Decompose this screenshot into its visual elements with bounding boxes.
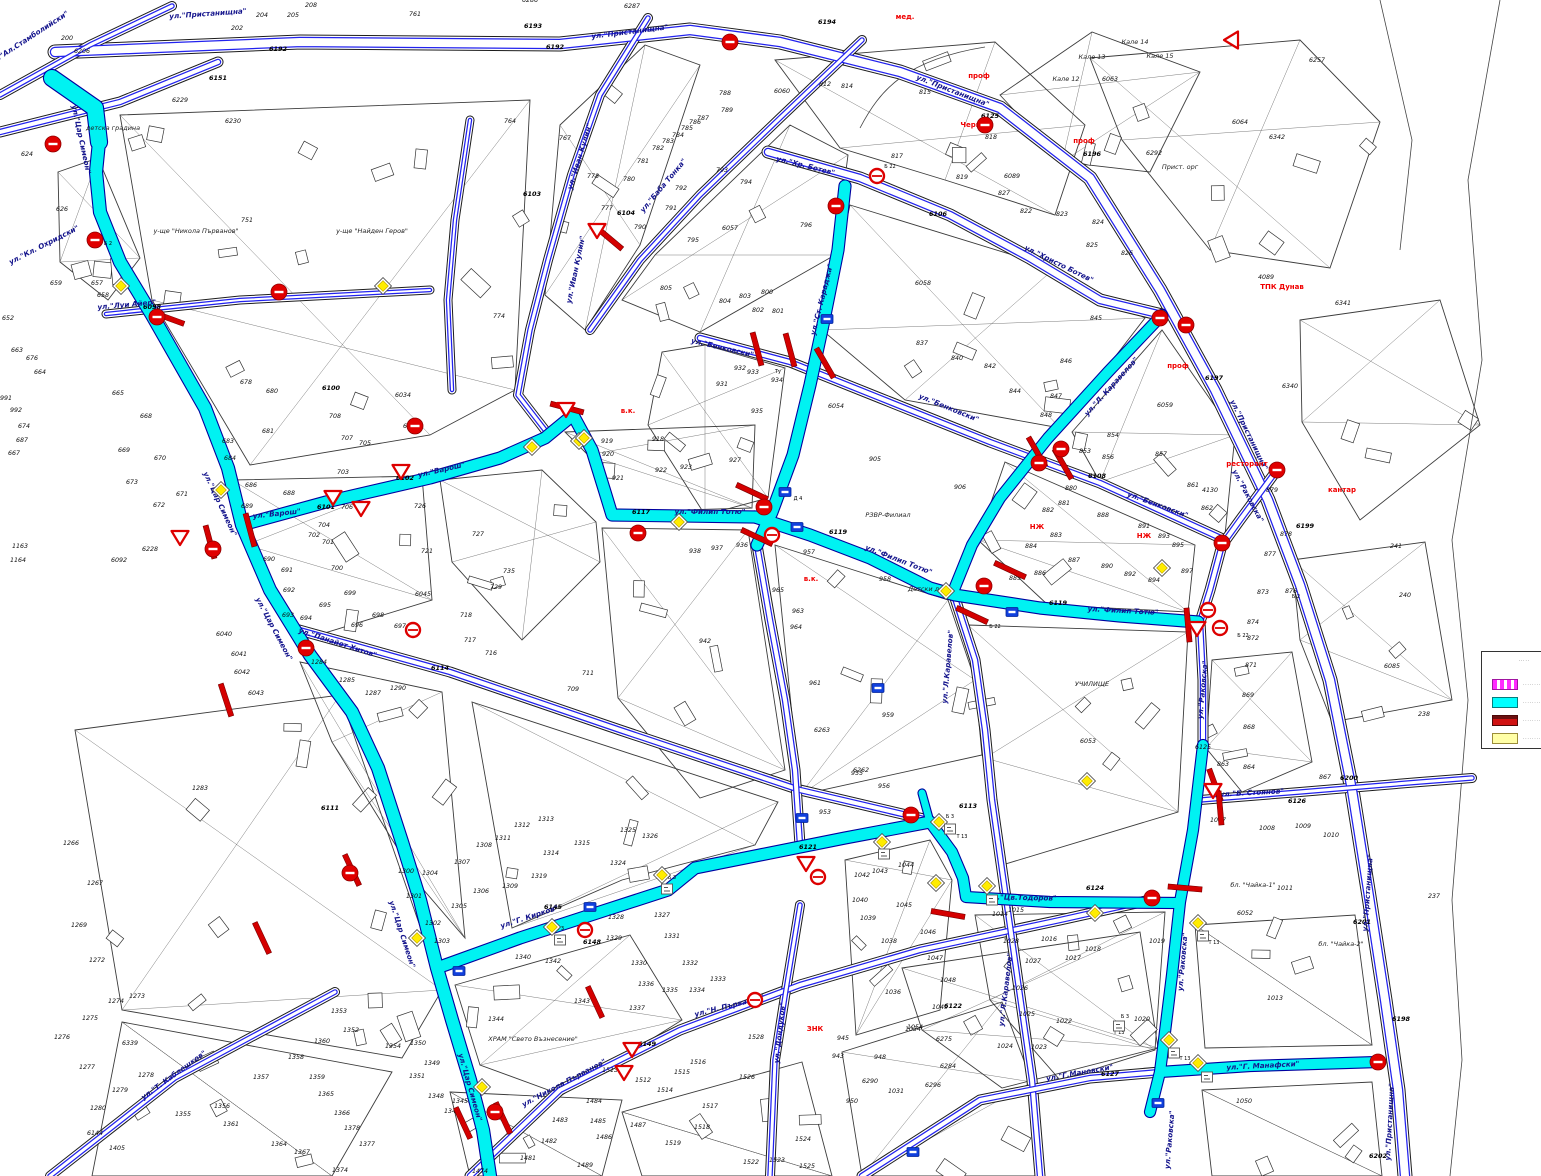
no-entry-sign-icon <box>630 525 646 541</box>
info-sign-icon <box>1006 608 1018 617</box>
parcel-number: 791 <box>665 205 677 212</box>
no-entry-sign-icon <box>205 541 221 557</box>
parcel-number: 1326 <box>642 833 658 840</box>
place-label: бл. "Чайка-1" <box>1230 881 1275 889</box>
parcel-number: 956 <box>878 783 890 790</box>
parcel-number: 1519 <box>665 1140 681 1147</box>
legend: ····· ·········· ········· ········· ···… <box>1481 651 1541 749</box>
street-name-label: ул."Л.Каравелов" <box>940 629 955 704</box>
parcel-number: 1045 <box>896 902 912 909</box>
parcel-number: 6229 <box>172 97 188 104</box>
parcel-number: 1514 <box>657 1087 673 1094</box>
parcel-number: 6206 <box>74 48 90 55</box>
parcel-number: 1360 <box>314 1038 330 1045</box>
no-stopping-sign-icon <box>1201 603 1215 617</box>
building-footprint <box>1252 950 1270 959</box>
building-footprint <box>461 268 491 297</box>
parcel-number: 6054 <box>828 403 844 410</box>
parcel-number: 1344 <box>488 1016 504 1023</box>
parcel-number: 1524 <box>795 1136 811 1143</box>
building-footprint <box>749 205 766 222</box>
building-footprint <box>298 141 317 160</box>
priority-road-sign-icon <box>1190 915 1207 932</box>
parcel-number: 1319 <box>531 873 547 880</box>
parcel-number: 698 <box>372 612 384 619</box>
parcel-number: 1331 <box>664 933 680 940</box>
parcel-number: 1359 <box>309 1074 325 1081</box>
parcel-number: 6041 <box>231 651 247 658</box>
no-entry-sign-icon <box>487 1104 503 1120</box>
street-code: 6113 <box>959 802 978 810</box>
building-footprint <box>93 261 112 278</box>
parcel-number: 676 <box>26 355 38 362</box>
building-footprint <box>295 250 308 265</box>
parcel-number: 919 <box>601 438 613 445</box>
parcel-number: 1356 <box>214 1103 230 1110</box>
building-footprint <box>1130 1019 1157 1046</box>
building-footprint <box>841 667 864 682</box>
parcel-number: 965 <box>772 587 784 594</box>
building-footprint <box>1208 236 1231 263</box>
parcel-number: 735 <box>503 568 515 575</box>
parcel-number: 1486 <box>596 1134 612 1141</box>
place-label: УЧИЛИЩЕ <box>1075 680 1110 688</box>
parcel-number: 961 <box>809 680 821 687</box>
building-footprint <box>1103 752 1120 770</box>
parcel-number: 1275 <box>82 1015 98 1022</box>
street-name-label: ул."Иван Кулин" <box>564 235 587 304</box>
parcel-number: 794 <box>740 179 752 186</box>
street-code: 6199 <box>1296 522 1315 530</box>
sign-code-label: Б 22 <box>989 624 1000 630</box>
building-footprint <box>400 534 411 546</box>
building-footprint <box>1001 1126 1031 1152</box>
parcel-subdivision <box>250 100 530 465</box>
building-footprint <box>371 910 387 931</box>
parcel-number: 708 <box>329 413 341 420</box>
parcel-number: 751 <box>241 217 253 224</box>
building-footprint <box>710 645 723 672</box>
parcel-number: 1267 <box>87 880 103 887</box>
parcel-number: 801 <box>772 308 784 315</box>
sign-plate-icon <box>662 884 673 894</box>
parcel-number: 936 <box>736 542 748 549</box>
street-code: 6111 <box>321 804 339 812</box>
street-name-label: ул."Раковска" <box>1162 1110 1176 1169</box>
place-label: у-ще "Найден Геров" <box>335 227 408 235</box>
parcel-number: 6287 <box>624 3 640 10</box>
building-footprint <box>1291 956 1313 974</box>
road-surface <box>518 18 648 430</box>
sign-code-label: Б 2 <box>104 241 112 247</box>
parcel-number: 673 <box>126 479 138 486</box>
parcel-number: 687 <box>16 437 28 444</box>
parcel-number: 1039 <box>860 915 876 922</box>
parcel-number: 6339 <box>122 1040 138 1047</box>
parcel-number: 847 <box>1050 393 1062 400</box>
parcel-number: 1050 <box>1236 1098 1252 1105</box>
parcel-number: 1034 <box>905 1026 921 1033</box>
parcel-number: 1010 <box>1323 832 1339 839</box>
parcel-number: 868 <box>1243 724 1255 731</box>
parcel-number: 1278 <box>138 1072 154 1079</box>
parcel-number: 1351 <box>409 1073 425 1080</box>
legend-swatch-yellow <box>1492 733 1518 744</box>
legend-swatch-cyan <box>1492 697 1518 708</box>
parcel-number: 882 <box>1042 507 1054 514</box>
parcel-number: 1377 <box>359 1141 375 1148</box>
parcel-number: 853 <box>1079 448 1091 455</box>
parcel-number: 1042 <box>854 872 870 879</box>
parcel-number: 922 <box>655 467 667 474</box>
parcel-number: 805 <box>660 285 672 292</box>
parcel-number: 658 <box>97 292 109 299</box>
street-name-label: ул."Иван Кулин" <box>565 122 594 191</box>
parcel-number: 1048 <box>940 977 956 984</box>
parcel-number: 906 <box>954 484 966 491</box>
parcel-number: 1528 <box>748 1034 764 1041</box>
legend-swatch-red <box>1492 715 1518 726</box>
parcel-number: 697 <box>394 623 406 630</box>
priority-road-sign-icon <box>1154 560 1171 577</box>
place-label: Кале 13 <box>1078 53 1105 61</box>
street-code: 6106 <box>929 210 948 218</box>
parcel-subdivision <box>1122 122 1380 140</box>
no-entry-sign-icon <box>298 640 314 656</box>
parcel-number: 1022 <box>1056 1018 1072 1025</box>
parcel-number: 700 <box>331 565 343 572</box>
street-code: 6126 <box>1288 797 1307 805</box>
legend-item-regulation: ·········· <box>1492 674 1541 686</box>
parcel-number: 1335 <box>662 987 678 994</box>
parcel-number: 704 <box>318 522 330 529</box>
parcel-number: 6060 <box>774 88 790 95</box>
annotation-red-label: мед. <box>896 13 915 21</box>
parcel-number: 777 <box>601 205 613 212</box>
sign-code-label: Б 2 <box>1292 594 1300 600</box>
parcel-number: 1014 <box>992 911 1008 918</box>
parcel-number: 854 <box>1107 432 1119 439</box>
street-name-label: ул."Дондуков" <box>772 1002 787 1064</box>
parcel-number: 781 <box>637 158 649 165</box>
parcel-number: 1315 <box>574 840 590 847</box>
legend-swatch-magenta <box>1492 679 1518 690</box>
parcel-number: 887 <box>1068 557 1080 564</box>
parcel-number: 707 <box>341 435 353 442</box>
parcel-number: 1031 <box>888 1088 904 1095</box>
info-sign-icon <box>584 903 596 912</box>
parcel-number: 204 <box>256 12 268 19</box>
field-boundary <box>1450 0 1500 1176</box>
parcel-number: 6286 <box>522 0 538 4</box>
parcel-number: 1324 <box>610 860 626 867</box>
parcel-number: 857 <box>1155 451 1167 458</box>
parcel-number: 1311 <box>495 835 511 842</box>
parcel-number: 1276 <box>54 1034 70 1041</box>
parcel-number: 892 <box>1124 571 1136 578</box>
parcel-number: 1300 <box>398 868 414 875</box>
parcel-subdivision <box>1072 432 1235 435</box>
parcel-subdivision <box>1212 660 1312 762</box>
no-entry-sign-icon <box>977 117 993 133</box>
parcel-number: 788 <box>719 90 731 97</box>
street-code: 6119 <box>829 528 848 536</box>
parcel-number: 1266 <box>63 840 79 847</box>
parcel-number: 1367 <box>294 1149 310 1156</box>
parcel-number: 6043 <box>248 690 264 697</box>
building-footprint <box>432 779 456 805</box>
no-entry-sign-icon <box>1152 310 1168 326</box>
parcel-number: 1522 <box>743 1159 759 1166</box>
parcel-number: 729 <box>490 584 502 591</box>
parcel-number: 787 <box>697 115 709 122</box>
place-label: ХРАМ "Свето Възнесение" <box>487 1035 577 1043</box>
building-footprint <box>639 603 667 618</box>
parcel-number: 663 <box>11 347 23 354</box>
parcel-number: 884 <box>1025 543 1037 550</box>
parcel-number: 827 <box>998 190 1010 197</box>
surveyed-street <box>437 822 930 968</box>
parcel-subdivision <box>522 470 542 640</box>
place-label: РЗВР-Филиал <box>865 511 910 519</box>
building-footprint <box>1044 380 1059 392</box>
parcel-number: 6045 <box>415 591 431 598</box>
parcel-number: 626 <box>56 206 68 213</box>
parcel-number: 938 <box>689 548 701 555</box>
legend-item-priority: ·········· <box>1492 728 1541 740</box>
street-code: 6104 <box>617 209 636 217</box>
priority-road-sign-icon <box>928 875 945 892</box>
parcel-number: 959 <box>882 712 894 719</box>
parcel-number: 6092 <box>111 557 127 564</box>
parcel-number: 1361 <box>223 1121 239 1128</box>
no-stopping-sign-icon <box>870 169 884 183</box>
parcel-number: 1272 <box>89 957 105 964</box>
parcel-number: 937 <box>711 545 723 552</box>
parcel-block <box>648 345 785 515</box>
parcel-subdivision <box>120 115 430 435</box>
parcel-number: 664 <box>34 369 46 376</box>
parcel-number: 931 <box>716 381 728 388</box>
building-footprint <box>128 135 145 152</box>
parcel-number: 1517 <box>702 1103 718 1110</box>
parcel-number: 824 <box>1092 219 1104 226</box>
building-footprint <box>368 993 382 1008</box>
building-footprint <box>964 1015 983 1035</box>
parcel-number: 689 <box>241 503 253 510</box>
parcel-number: 1008 <box>1259 825 1275 832</box>
parcel-subdivision <box>152 300 515 390</box>
parcel-number: 1354 <box>385 1043 401 1050</box>
parcel-number: 1308 <box>476 842 492 849</box>
road-surface-inner <box>518 18 648 430</box>
parcel-number: 825 <box>1086 242 1098 249</box>
building-footprint <box>1118 975 1133 991</box>
street-code: 6119 <box>1049 599 1068 607</box>
parcel-number: 1483 <box>552 1117 568 1124</box>
building-footprint <box>1135 703 1160 730</box>
parcel-number: 672 <box>153 502 165 509</box>
parcel-number: 878 <box>1280 531 1292 538</box>
parcel-number: 6144 <box>87 1130 103 1137</box>
no-entry-sign-icon <box>271 284 287 300</box>
building-footprint <box>226 360 245 377</box>
parcel-number: 890 <box>1101 563 1113 570</box>
annotation-red-label: проф <box>1073 137 1095 145</box>
building-footprint <box>737 437 754 452</box>
place-label: у-ще "Никола Първанов" <box>152 227 238 235</box>
parcel-number: 1015 <box>1008 907 1024 914</box>
parcel-number: 686 <box>245 482 257 489</box>
building-footprint <box>966 153 986 172</box>
parcel-number: 6034 <box>395 392 411 399</box>
parcel-number: 6064 <box>1232 119 1248 126</box>
parcel-number: 918 <box>652 436 664 443</box>
building-footprint <box>1341 420 1360 443</box>
street-code: 6121 <box>799 843 817 851</box>
parcel-number: 881 <box>1058 500 1070 507</box>
parcel-number: 950 <box>846 1098 858 1105</box>
yield-sign-icon <box>353 502 370 516</box>
parcel-block <box>455 935 682 1095</box>
parcel-number: 6296 <box>925 1082 941 1089</box>
parcel-number: 783 <box>662 138 674 145</box>
building-footprint <box>506 868 518 879</box>
no-entry-sign-icon <box>407 418 423 434</box>
street-code: 6100 <box>322 384 341 392</box>
building-footprint <box>186 798 209 821</box>
place-label: Кале 14 <box>1121 38 1148 46</box>
sign-plate-icon <box>1202 1072 1213 1082</box>
field-boundary <box>1380 0 1412 250</box>
parcel-number: 1405 <box>109 1145 125 1152</box>
parcel-number: 957 <box>803 549 815 556</box>
parcel-subdivision <box>1206 748 1312 762</box>
parcel-subdivision <box>1302 300 1440 422</box>
parcel-number: 6262 <box>853 767 869 774</box>
parcel-number: 1481 <box>520 1155 536 1162</box>
place-label: бл. "Чайка-2" <box>1318 940 1363 948</box>
parcel-number: 812 <box>819 81 831 88</box>
parcel-number: 691 <box>281 567 293 574</box>
parcel-number: 1287 <box>365 690 381 697</box>
parcel-number: 1332 <box>682 960 698 967</box>
building-footprint <box>554 505 567 517</box>
parcel-number: 1330 <box>631 960 647 967</box>
annotation-red-label: НЖ <box>1030 523 1045 531</box>
parcel-number: 1307 <box>454 859 470 866</box>
parcel-number: 659 <box>50 280 62 287</box>
parcel-number: 1350 <box>410 1040 426 1047</box>
parcel-number: 893 <box>1158 533 1170 540</box>
parcel-number: 6053 <box>1080 738 1096 745</box>
parcel-number: 803 <box>739 293 751 300</box>
parcel-number: 894 <box>1148 577 1160 584</box>
parcel-number: 6340 <box>1282 383 1298 390</box>
parcel-number: 815 <box>919 89 931 96</box>
building-footprint <box>952 687 969 714</box>
parcel-number: 778 <box>587 173 599 180</box>
building-footprint <box>491 356 513 369</box>
parcel-number: 1304 <box>422 870 438 877</box>
parcel-number: 879 <box>1266 487 1278 494</box>
parcel-number: 1516 <box>690 1059 706 1066</box>
parcel-number: 804 <box>719 298 731 305</box>
parcel-number: 767 <box>559 135 571 142</box>
building-footprint <box>1075 697 1091 713</box>
info-sign-icon <box>907 1148 919 1157</box>
parcel-number: 6292 <box>1146 150 1162 157</box>
parcel-number: 1283 <box>192 785 208 792</box>
place-label: Прист. орг <box>1162 163 1199 171</box>
parcel-number: 1523 <box>769 1157 785 1164</box>
no-stopping-sign-icon <box>578 923 592 937</box>
info-sign-icon <box>453 967 465 976</box>
parcel-number: 891 <box>1138 523 1150 530</box>
parcel-number: 1043 <box>872 868 888 875</box>
sign-plate-icon <box>555 935 566 945</box>
parcel-number: 826 <box>1121 250 1133 257</box>
no-entry-sign-icon <box>1053 441 1069 457</box>
parcel-number: 624 <box>21 151 33 158</box>
parcel-number: 1018 <box>1085 946 1101 953</box>
building-footprint <box>626 776 649 800</box>
no-entry-sign-icon <box>87 232 103 248</box>
parcel-number: 862 <box>1201 505 1213 512</box>
building-footprint <box>147 126 165 143</box>
parcel-number: 702 <box>308 532 320 539</box>
parcel-number: 1474 <box>472 1168 488 1175</box>
no-entry-sign-icon <box>976 578 992 594</box>
parcel-number: 1026 <box>1012 985 1028 992</box>
info-sign-icon <box>872 684 884 693</box>
annotation-red-label: кантар <box>1328 486 1356 494</box>
parcel-number: 6342 <box>1269 134 1285 141</box>
parcel-number: 6059 <box>1157 402 1173 409</box>
street-code: 6193 <box>524 22 543 30</box>
building-footprint <box>1211 186 1224 201</box>
parcel-number: 1280 <box>90 1105 106 1112</box>
parcel-number: 1484 <box>586 1098 602 1105</box>
parcel-number: 652 <box>2 315 14 322</box>
parcel-number: 774 <box>493 313 505 320</box>
place-label: Кале 12 <box>1052 75 1079 83</box>
building-footprint <box>1104 133 1121 154</box>
street-code: 6198 <box>1392 1015 1411 1023</box>
parcel-number: 1038 <box>881 938 897 945</box>
parcel-number: 1526 <box>739 1074 755 1081</box>
building-footprint <box>936 1159 966 1176</box>
parcel-number: 1163 <box>12 543 28 550</box>
parcel-number: 701 <box>322 539 334 546</box>
parcel-number: 963 <box>792 608 804 615</box>
parcel-subdivision <box>452 522 596 562</box>
parcel-number: 873 <box>1257 589 1269 596</box>
parcel-number: 795 <box>687 237 699 244</box>
building-footprint <box>71 260 92 279</box>
parcel-subdivision <box>455 985 682 1020</box>
parcel-number: 1342 <box>545 958 561 965</box>
parcel-number: 793 <box>716 167 728 174</box>
parcel-number: 6042 <box>234 669 250 676</box>
info-sign-icon <box>791 523 803 532</box>
parcel-subdivision <box>648 368 785 425</box>
parcel-number: 703 <box>337 469 349 476</box>
parcel-number: 4130 <box>1202 487 1218 494</box>
parcel-number: 932 <box>734 365 746 372</box>
parcel-number: 6125 <box>1195 744 1211 751</box>
no-entry-sign-icon <box>1370 1054 1386 1070</box>
